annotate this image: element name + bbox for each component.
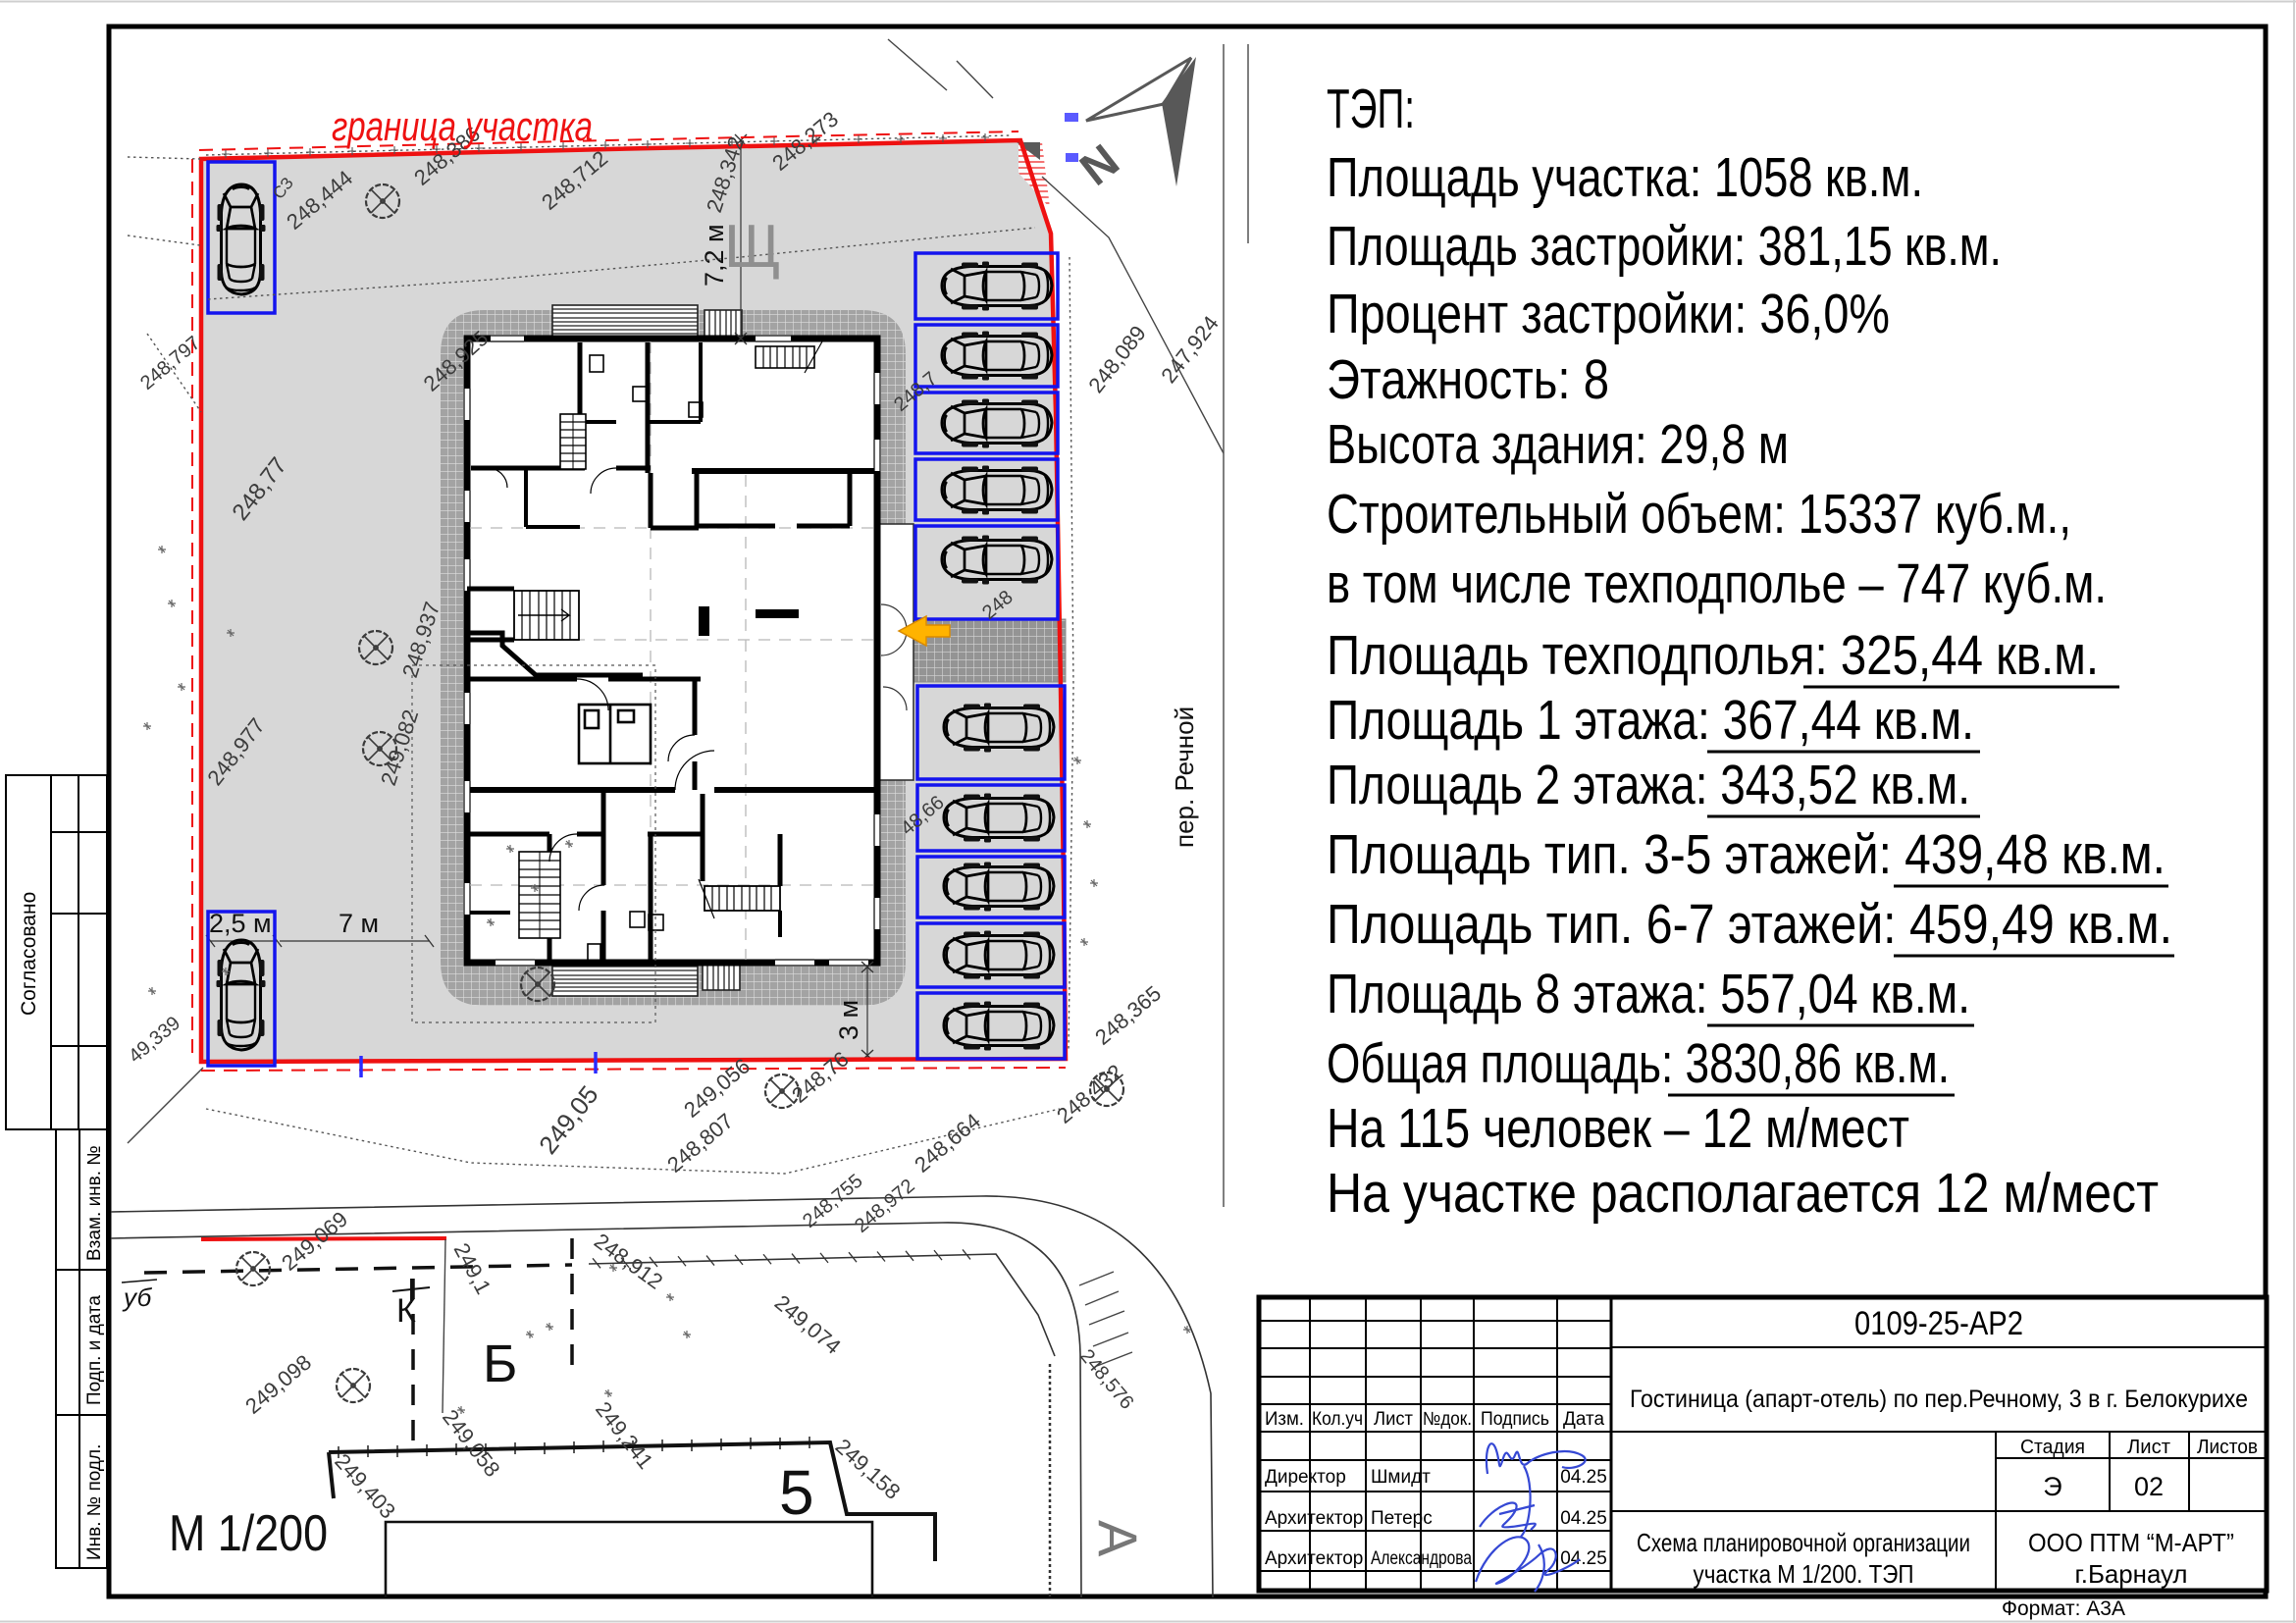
svg-text:Архитектор: Архитектор	[1265, 1508, 1363, 1529]
svg-text:Лист: Лист	[2127, 1437, 2170, 1458]
svg-text:5: 5	[779, 1457, 814, 1528]
svg-text:Площадь тип. 6-7 этажей: 459,4: Площадь тип. 6-7 этажей: 459,49 кв.м.	[1327, 893, 2172, 956]
svg-text:Лист: Лист	[1374, 1409, 1413, 1430]
svg-text:Схема планировочной организаци: Схема планировочной организации	[1637, 1528, 1970, 1557]
svg-text:Площадь застройки: 381,15 кв.м: Площадь застройки: 381,15 кв.м.	[1327, 215, 2002, 278]
svg-text:ООО ПТМ “М-АРТ”: ООО ПТМ “М-АРТ”	[2028, 1528, 2234, 1557]
svg-text:А: А	[1087, 1520, 1149, 1557]
svg-text:Процент застройки: 36,0%: Процент застройки: 36,0%	[1327, 283, 1890, 345]
svg-text:249,241: 249,241	[591, 1397, 658, 1474]
svg-text:249,074: 249,074	[770, 1290, 846, 1359]
svg-text:Директор: Директор	[1265, 1467, 1346, 1488]
svg-text:3 м: 3 м	[834, 1000, 863, 1040]
svg-text:Формат: А3А: Формат: А3А	[2002, 1597, 2125, 1620]
svg-text:Листов: Листов	[2197, 1437, 2258, 1458]
svg-text:248,807: 248,807	[662, 1109, 738, 1178]
svg-text:участка М 1/200. ТЭП: участка М 1/200. ТЭП	[1694, 1559, 1914, 1589]
svg-text:248,432: 248,432	[1052, 1060, 1127, 1128]
svg-text:249,098: 249,098	[240, 1350, 316, 1419]
svg-text:граница участка: граница участка	[332, 103, 593, 149]
svg-text:249,05: 249,05	[533, 1080, 604, 1160]
svg-text:49,339: 49,339	[125, 1013, 184, 1068]
svg-text:249,403: 249,403	[330, 1449, 400, 1524]
svg-text:в том числе техподполье – 747: в том числе техподполье – 747 куб.м.	[1327, 552, 2107, 615]
svg-text:Площадь 2 этажа: 343,52 кв.м.: Площадь 2 этажа: 343,52 кв.м.	[1327, 754, 1970, 816]
svg-text:Александрова: Александрова	[1371, 1548, 1472, 1569]
svg-text:Строительный объем: 15337 куб.: Строительный объем: 15337 куб.м.,	[1327, 483, 2071, 546]
svg-text:247,924: 247,924	[1156, 311, 1224, 388]
svg-text:К: К	[396, 1292, 416, 1330]
svg-text:Согласовано: Согласовано	[18, 892, 40, 1016]
svg-text:Подпись: Подпись	[1481, 1409, 1549, 1430]
svg-text:уб: уб	[122, 1283, 153, 1312]
svg-text:248,797: 248,797	[136, 333, 205, 394]
svg-text:7 м: 7 м	[339, 909, 379, 938]
svg-text:248,664: 248,664	[910, 1109, 985, 1178]
svg-text:04.25: 04.25	[1560, 1467, 1607, 1488]
svg-text:ТЭП:: ТЭП:	[1327, 78, 1415, 140]
svg-text:Петерс: Петерс	[1371, 1508, 1433, 1529]
svg-text:04.25: 04.25	[1560, 1548, 1607, 1569]
svg-text:Э: Э	[2043, 1472, 2061, 1501]
svg-text:Шмидт: Шмидт	[1371, 1467, 1431, 1488]
svg-text:Общая площадь: 3830,86 кв.м.: Общая площадь: 3830,86 кв.м.	[1327, 1032, 1950, 1095]
svg-text:Б: Б	[483, 1335, 517, 1393]
svg-text:Площадь техподполья: 325,44 кв: Площадь техподполья: 325,44 кв.м.	[1327, 624, 2099, 687]
svg-text:248,576: 248,576	[1075, 1345, 1137, 1414]
svg-text:Гостиница (апарт-отель) по пер: Гостиница (апарт-отель) по пер.Речному, …	[1630, 1386, 2248, 1413]
svg-text:Подп. и дата: Подп. и дата	[84, 1295, 105, 1405]
svg-text:Этажность: 8: Этажность: 8	[1327, 348, 1609, 411]
svg-text:248,365: 248,365	[1090, 981, 1166, 1050]
svg-text:Кол.уч: Кол.уч	[1312, 1409, 1363, 1430]
svg-text:М 1/200: М 1/200	[169, 1505, 328, 1562]
svg-text:Площадь 8 этажа: 557,04 кв.м.: Площадь 8 этажа: 557,04 кв.м.	[1327, 963, 1970, 1025]
svg-text:Инв. № подл.: Инв. № подл.	[84, 1444, 105, 1560]
svg-text:На участке располагается 12 м/: На участке располагается 12 м/мест	[1327, 1162, 2159, 1225]
svg-text:Стадия: Стадия	[2020, 1437, 2085, 1458]
svg-text:На 115 человек – 12 м/мест: На 115 человек – 12 м/мест	[1327, 1097, 1909, 1160]
svg-text:249,058: 249,058	[438, 1405, 505, 1482]
svg-text:248,912: 248,912	[590, 1229, 667, 1294]
svg-text:249,069: 249,069	[277, 1207, 352, 1276]
svg-text:Площадь 1 этажа: 367,44 кв.м.: Площадь 1 этажа: 367,44 кв.м.	[1327, 689, 1974, 752]
svg-text:Высота здания: 29,8 м: Высота здания: 29,8 м	[1327, 413, 1789, 476]
svg-text:248,089: 248,089	[1083, 321, 1151, 397]
svg-text:N: N	[1070, 133, 1128, 195]
svg-text:0109-25-АР2: 0109-25-АР2	[1854, 1305, 2023, 1342]
svg-text:Площадь участка: 1058 кв.м.: Площадь участка: 1058 кв.м.	[1327, 146, 1923, 209]
svg-text:02: 02	[2134, 1472, 2164, 1501]
svg-text:04.25: 04.25	[1560, 1508, 1607, 1529]
svg-text:Дата: Дата	[1563, 1409, 1604, 1430]
svg-text:Изм.: Изм.	[1265, 1409, 1304, 1430]
svg-text:пер. Речной: пер. Речной	[1170, 707, 1199, 848]
svg-text:г.Барнаул: г.Барнаул	[2075, 1559, 2188, 1589]
svg-text:Архитектор: Архитектор	[1265, 1548, 1363, 1569]
svg-text:№док.: №док.	[1423, 1409, 1472, 1430]
svg-text:Щ: Щ	[724, 213, 781, 281]
svg-text:Площадь тип. 3-5 этажей: 439,4: Площадь тип. 3-5 этажей: 439,48 кв.м.	[1327, 823, 2166, 886]
svg-text:Взам. инв. №: Взам. инв. №	[84, 1145, 105, 1261]
